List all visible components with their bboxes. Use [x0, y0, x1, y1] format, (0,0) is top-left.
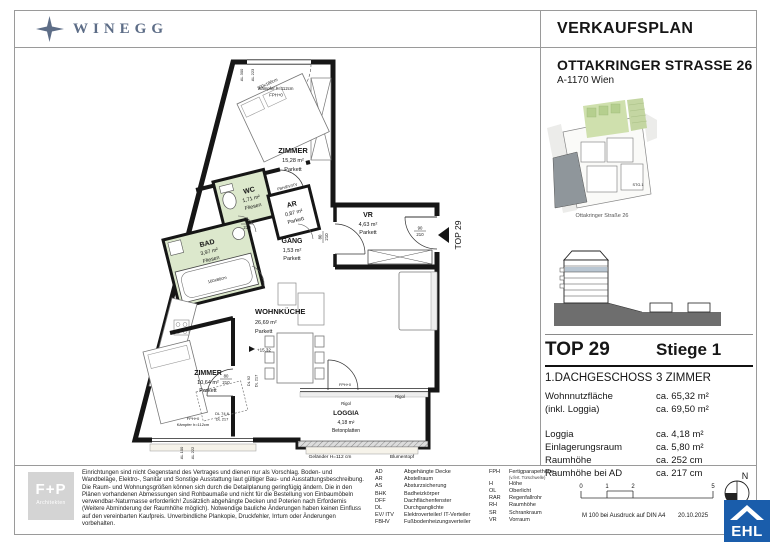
footer-rule	[14, 465, 756, 466]
fph0-top-label: FPH+0	[269, 93, 283, 98]
svg-text:80: 80	[245, 219, 250, 224]
scale-bar: 0 1 2 5	[576, 480, 721, 506]
legend-row: EV/ ITVElektroverteiler/ IT-Verteiler	[375, 512, 471, 519]
unit-stiege: Stiege 1	[656, 340, 721, 360]
vertical-divider	[540, 10, 541, 465]
scale-tick-5: 5	[711, 484, 715, 490]
unit-floor: 1.DACHGESCHOSS	[545, 372, 656, 384]
al100-label: AL 100	[179, 446, 184, 459]
building-section	[550, 246, 725, 331]
zimmer2-name: ZIMMER	[194, 370, 222, 377]
loggia-floor: Betonplatten	[332, 428, 360, 434]
zimmer1-area: 15,28 m²	[282, 158, 304, 164]
ehl-roof-icon	[724, 500, 770, 524]
legend-row: SRSchrankraum	[489, 510, 554, 517]
svg-text:210: 210	[222, 380, 230, 385]
kaempfer-top-label: Kämpfer h=112cm	[259, 86, 294, 91]
unit-info-table: TOP 29 Stiege 1 1.DACHGESCHOSS 3 ZIMMER …	[545, 334, 753, 480]
abbreviation-legend-col2: FPHFertigparapethöhe(v.fert. Türschwelle…	[489, 469, 554, 524]
level-label: +15,32	[257, 348, 271, 353]
legend-row: VRVorraum	[489, 517, 554, 524]
legend-row: HHöhe	[489, 481, 554, 488]
dl217-v-label: DL 217	[254, 374, 259, 388]
unit-top-number: TOP 29	[545, 339, 656, 361]
fph0-bottom-label: FPH+0	[187, 416, 200, 421]
rigol-label-1: Rigol	[341, 401, 351, 406]
legend-row: RARRegenfallrohr	[489, 495, 554, 502]
al300-label: AL 300	[239, 68, 244, 81]
vr-area: 4,63 m²	[359, 222, 378, 228]
top29-marker: TOP 29	[453, 220, 463, 249]
site-plan-map: STG.1	[547, 98, 657, 213]
scale-tick-2: 2	[631, 484, 635, 490]
al222-label: AL 222	[190, 446, 195, 459]
legend-row: DLDurchganglichte	[375, 505, 471, 512]
legend-row: ARAbstellraum	[375, 476, 471, 483]
gelaender-label: Geländer H=112 cm	[309, 454, 352, 460]
svg-text:210: 210	[416, 232, 424, 237]
svg-text:210: 210	[324, 233, 329, 241]
unit-title-row: TOP 29 Stiege 1	[545, 338, 753, 367]
ehl-name: EHL	[724, 523, 770, 540]
document-title: VERKAUFSPLAN	[557, 20, 693, 38]
legend-row: ASAbsturzsicherung	[375, 483, 471, 490]
verkaufsplan-sheet: WC 1,71 m² Fliesen FBH/EV/ITV AR 0,87 m²…	[0, 0, 770, 544]
scale-tick-1: 1	[605, 484, 609, 490]
scale-tick-0: 0	[579, 484, 583, 490]
table-row: Loggiaca. 4,18 m²	[545, 428, 753, 441]
brand-name: WINEGG	[73, 21, 168, 38]
architect-logo: F+P Architekten	[28, 472, 74, 520]
legend-row: RHRaumhöhe	[489, 502, 554, 509]
legend-row: FPHFertigparapethöhe(v.fert. Türschwelle…	[489, 469, 554, 481]
abbreviation-legend-col1: ADAbgehängte Decke ARAbstellraum ASAbstu…	[375, 469, 471, 527]
plan-date: 20.10.2025	[678, 513, 708, 519]
al223-label: AL 223	[250, 68, 255, 81]
couch	[399, 272, 437, 330]
wohnkueche-name: WOHNKÜCHE	[255, 307, 305, 316]
loggia-name: LOGGIA	[333, 410, 359, 417]
gang-name: GANG	[282, 238, 304, 245]
dining-table	[265, 333, 324, 383]
zimmer1-name: ZIMMER	[278, 146, 308, 155]
stg-label: STG.1	[633, 183, 644, 187]
legend-row: DFFDachflächenfenster	[375, 498, 471, 505]
blumentopf-label: Blumentopf	[390, 454, 415, 460]
fph0-loggia-label: FPH+0	[339, 383, 351, 387]
loggia-railing	[298, 441, 428, 454]
legend-row: BHKBadheizkörper	[375, 491, 471, 498]
north-label: N	[742, 471, 749, 481]
architect-sub: Architekten	[28, 500, 74, 506]
project-address: OTTAKRINGER STRASSE 26	[557, 57, 753, 73]
vr-floor: Parkett	[359, 230, 377, 236]
table-row: (inkl. Loggia)ca. 69,50 m²	[545, 403, 753, 416]
map-caption: Ottakringer Straße 26	[552, 213, 652, 219]
winegg-star-icon	[36, 16, 64, 42]
vr-name: VR	[363, 212, 373, 219]
rigol-label-2: Rigol	[395, 394, 405, 399]
svg-text:90: 90	[418, 226, 423, 231]
zimmer2-floor: Parkett	[199, 388, 217, 394]
loggia-area: 4,18 m²	[338, 420, 355, 426]
legend-row: ADAbgehängte Decke	[375, 469, 471, 476]
table-row: Wohnnutzflächeca. 65,32 m²	[545, 390, 753, 403]
window-bottom	[150, 439, 256, 451]
section-highlight-floor	[565, 267, 607, 272]
unit-rooms: 3 ZIMMER	[656, 372, 711, 384]
architect-name: F+P	[28, 481, 74, 498]
winegg-logo: WINEGG	[36, 16, 168, 42]
wohnkueche-floor: Parkett	[255, 329, 273, 335]
scale-note: M 100 bei Ausdruck auf DIN A4	[582, 513, 665, 519]
zimmer1-floor: Parkett	[284, 167, 302, 173]
dl746-label: DL 74,6	[215, 411, 230, 416]
project-city: A-1170 Wien	[557, 75, 614, 86]
gang-floor: Parkett	[283, 256, 301, 262]
dl92-label: DL 92	[246, 375, 251, 386]
zimmer2-area: 10,64 m²	[197, 380, 219, 386]
legend-row: OLOberlicht	[489, 488, 554, 495]
unit-floor-row: 1.DACHGESCHOSS 3 ZIMMER	[545, 372, 753, 384]
table-row: Einlagerungsraumca. 5,80 m²	[545, 441, 753, 454]
dl217-label: DL 217	[216, 417, 230, 422]
svg-text:80: 80	[318, 234, 323, 239]
legend-row: FBHVFußbodenheizungsverteiler	[375, 519, 471, 526]
wohnkueche-area: 26,69 m²	[255, 320, 277, 326]
kaempfer-bottom-label: Kämpfer h=112cm	[177, 422, 210, 427]
svg-text:80: 80	[224, 374, 229, 379]
disclaimer-text: Einrichtungen sind nicht Gegenstand des …	[82, 470, 364, 528]
header-rule	[14, 47, 756, 48]
ehl-logo: EHL	[724, 500, 770, 542]
gang-area: 1,53 m²	[283, 248, 302, 254]
svg-text:210: 210	[243, 225, 251, 230]
